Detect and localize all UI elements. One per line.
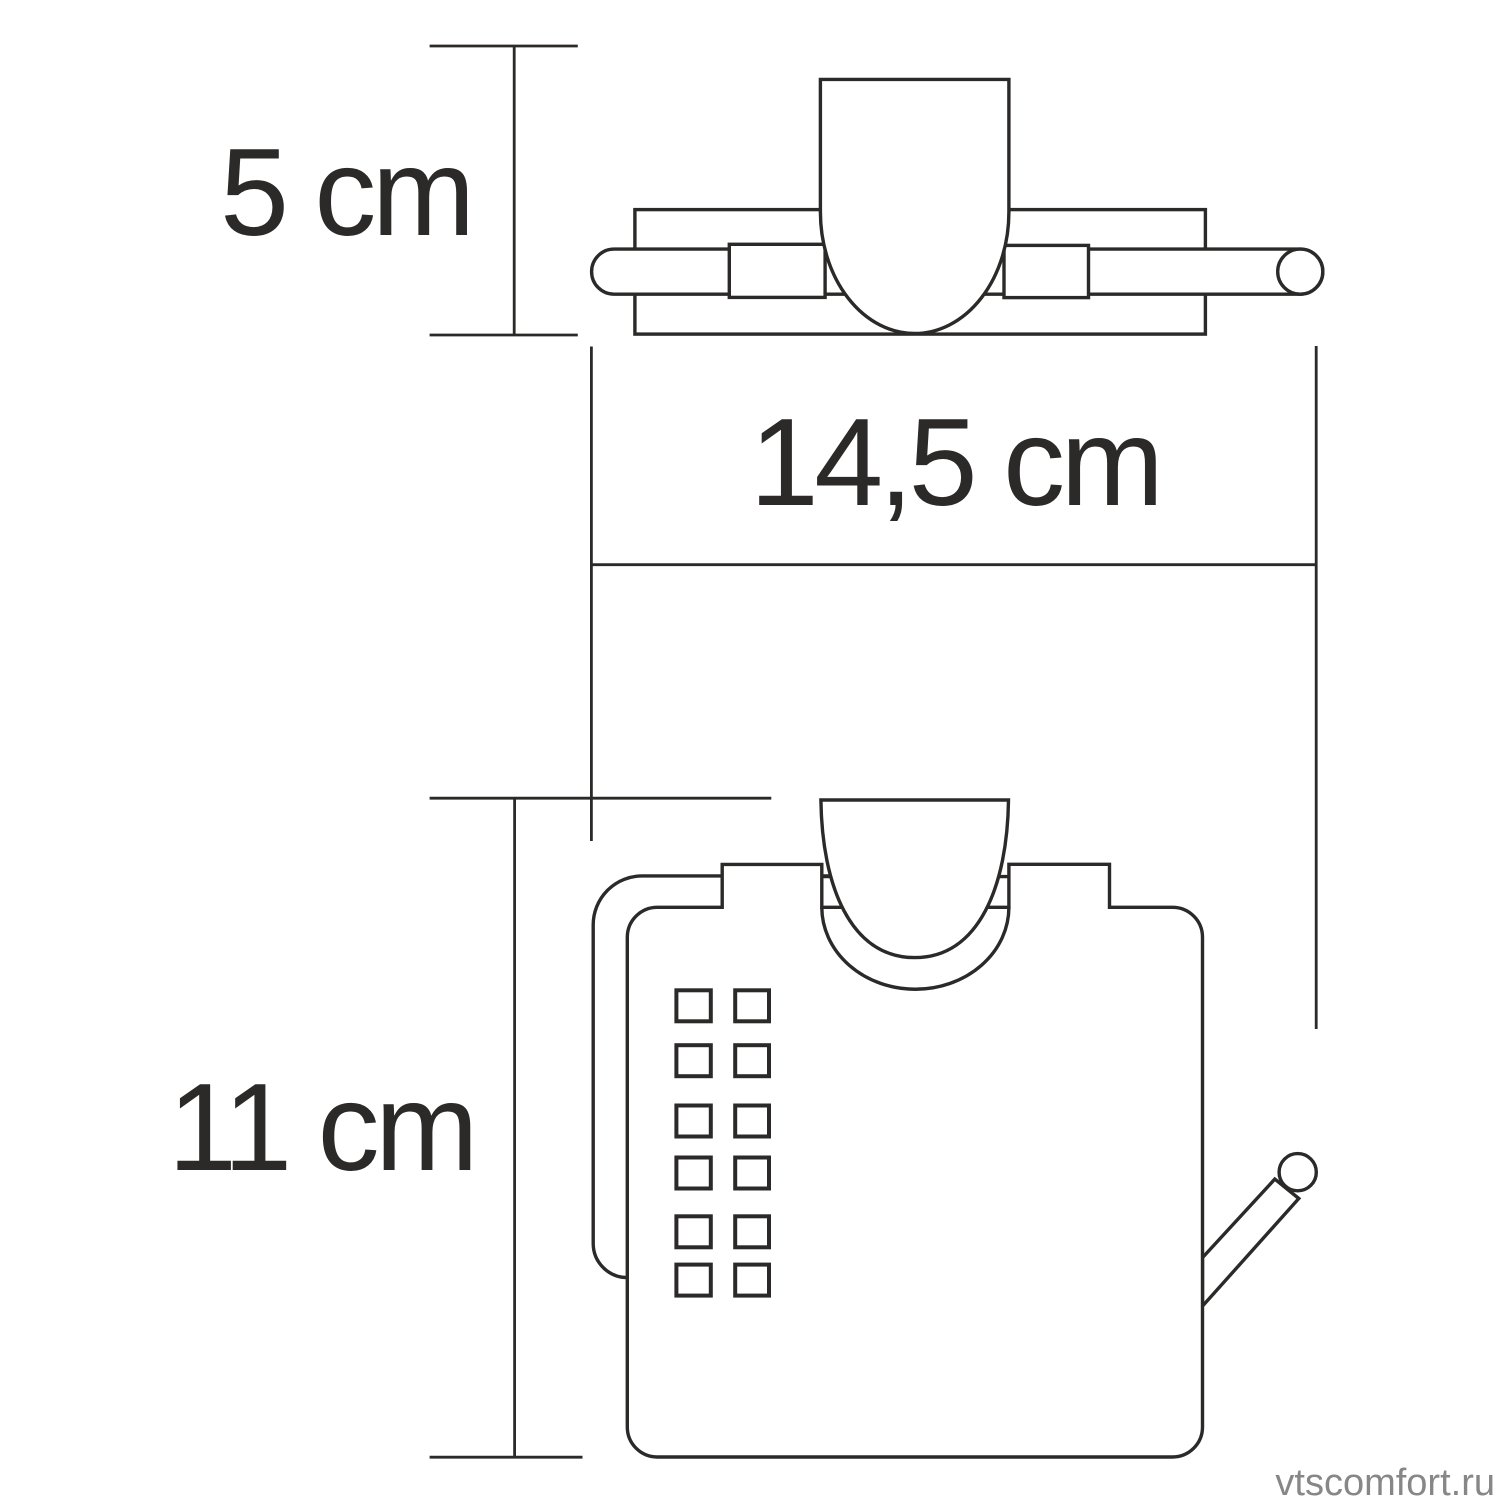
svg-text:14,5 cm: 14,5 cm (750, 394, 1160, 532)
svg-text:vtscomfort.ru: vtscomfort.ru (1275, 1462, 1495, 1504)
svg-text:11 cm: 11 cm (168, 1059, 474, 1197)
svg-text:5 cm: 5 cm (220, 124, 471, 262)
